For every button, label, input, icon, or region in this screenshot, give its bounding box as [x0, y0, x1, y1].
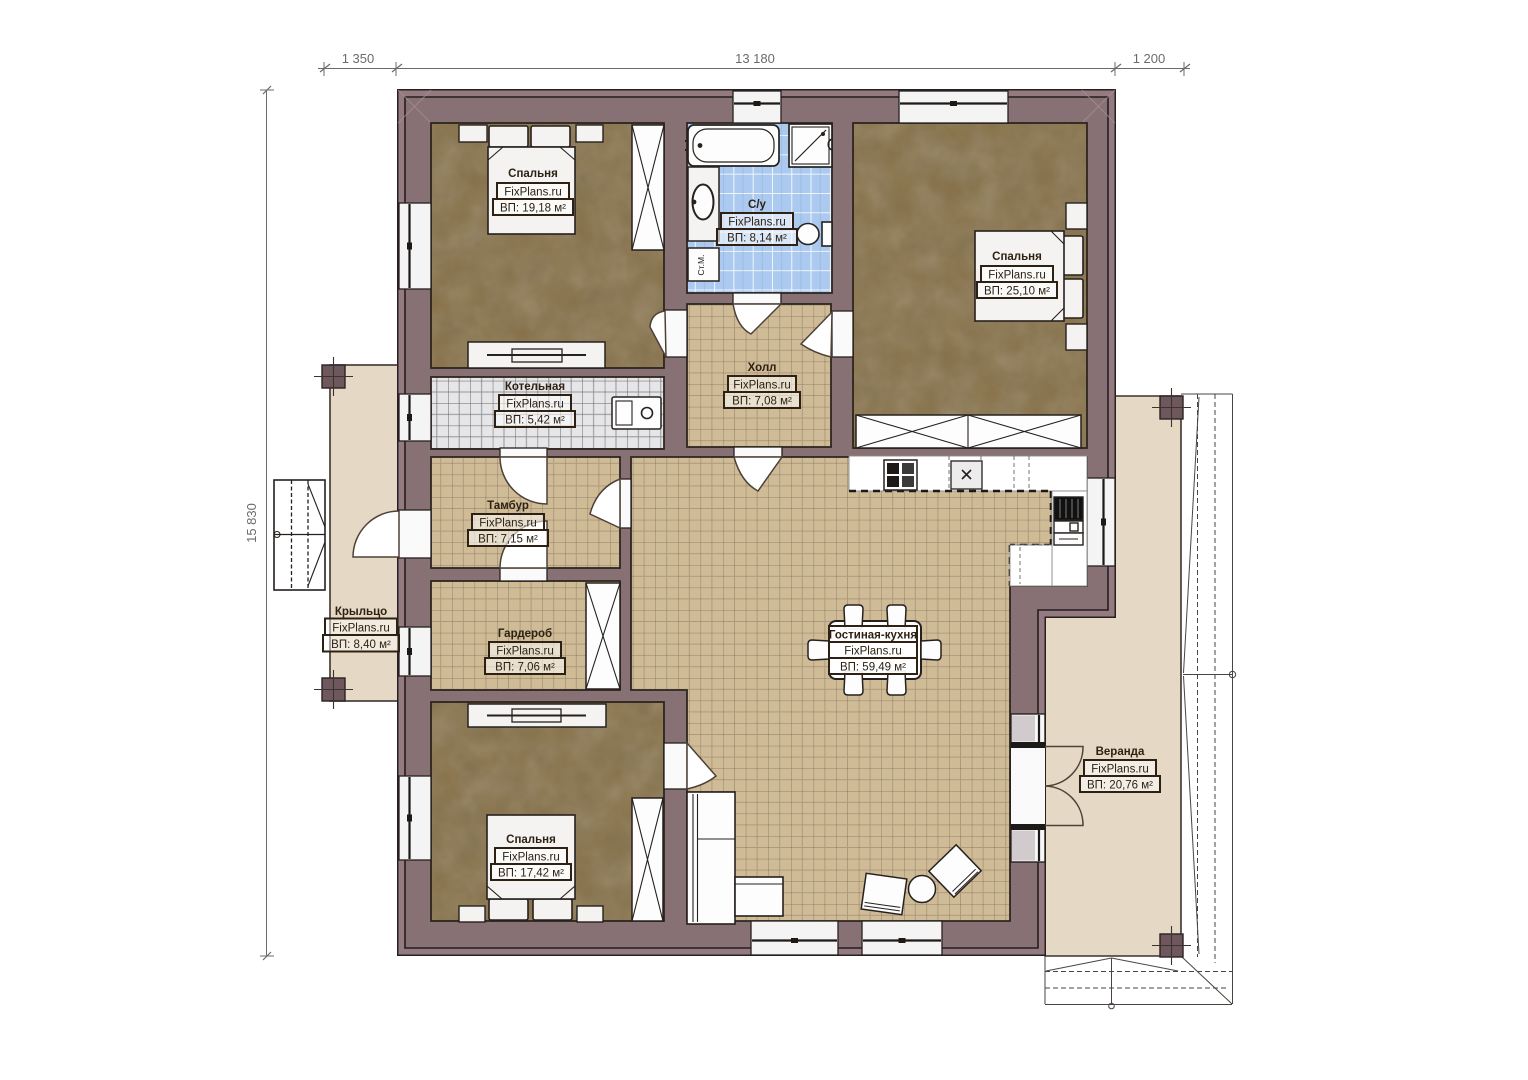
svg-text:Ст.М.: Ст.М.: [696, 255, 706, 276]
svg-text:ВП: 20,76 м²: ВП: 20,76 м²: [1087, 780, 1153, 792]
svg-text:13 180: 13 180: [735, 51, 775, 66]
svg-text:Спальня: Спальня: [506, 834, 556, 846]
svg-text:ВП: 7,15 м²: ВП: 7,15 м²: [478, 534, 538, 546]
svg-text:1 350: 1 350: [342, 51, 375, 66]
svg-text:ВП: 17,42 м²: ВП: 17,42 м²: [498, 868, 564, 880]
svg-text:ВП: 8,14 м²: ВП: 8,14 м²: [727, 233, 787, 245]
svg-text:Котельная: Котельная: [505, 381, 565, 393]
svg-text:FixPlans.ru: FixPlans.ru: [504, 187, 562, 199]
svg-text:1 200: 1 200: [1133, 51, 1166, 66]
svg-text:Гостиная-кухня: Гостиная-кухня: [829, 630, 917, 642]
svg-text:Веранда: Веранда: [1096, 746, 1145, 758]
svg-text:Холл: Холл: [748, 362, 777, 374]
svg-text:FixPlans.ru: FixPlans.ru: [502, 852, 560, 864]
svg-text:ВП: 5,42 м²: ВП: 5,42 м²: [505, 415, 565, 427]
svg-text:FixPlans.ru: FixPlans.ru: [496, 646, 554, 658]
svg-text:Спальня: Спальня: [992, 251, 1042, 263]
svg-text:FixPlans.ru: FixPlans.ru: [844, 646, 902, 658]
svg-text:FixPlans.ru: FixPlans.ru: [332, 623, 390, 635]
svg-text:FixPlans.ru: FixPlans.ru: [479, 518, 537, 530]
svg-text:FixPlans.ru: FixPlans.ru: [506, 399, 564, 411]
svg-text:15 830: 15 830: [244, 503, 259, 543]
svg-text:FixPlans.ru: FixPlans.ru: [988, 270, 1046, 282]
svg-text:ВП: 19,18 м²: ВП: 19,18 м²: [500, 203, 566, 215]
svg-text:ВП: 7,06 м²: ВП: 7,06 м²: [495, 662, 555, 674]
svg-text:ВП: 59,49 м²: ВП: 59,49 м²: [840, 662, 906, 674]
svg-text:С/у: С/у: [748, 199, 767, 211]
svg-text:Спальня: Спальня: [508, 168, 558, 180]
svg-text:ВП: 7,08 м²: ВП: 7,08 м²: [732, 396, 792, 408]
svg-text:Гардероб: Гардероб: [498, 628, 552, 640]
svg-text:Тамбур: Тамбур: [487, 500, 529, 512]
svg-text:FixPlans.ru: FixPlans.ru: [1091, 764, 1149, 776]
svg-text:Крыльцо: Крыльцо: [335, 606, 387, 618]
svg-text:FixPlans.ru: FixPlans.ru: [728, 217, 786, 229]
svg-text:FixPlans.ru: FixPlans.ru: [733, 380, 791, 392]
svg-text:ВП: 25,10 м²: ВП: 25,10 м²: [984, 286, 1050, 298]
svg-text:ВП: 8,40 м²: ВП: 8,40 м²: [331, 639, 391, 651]
